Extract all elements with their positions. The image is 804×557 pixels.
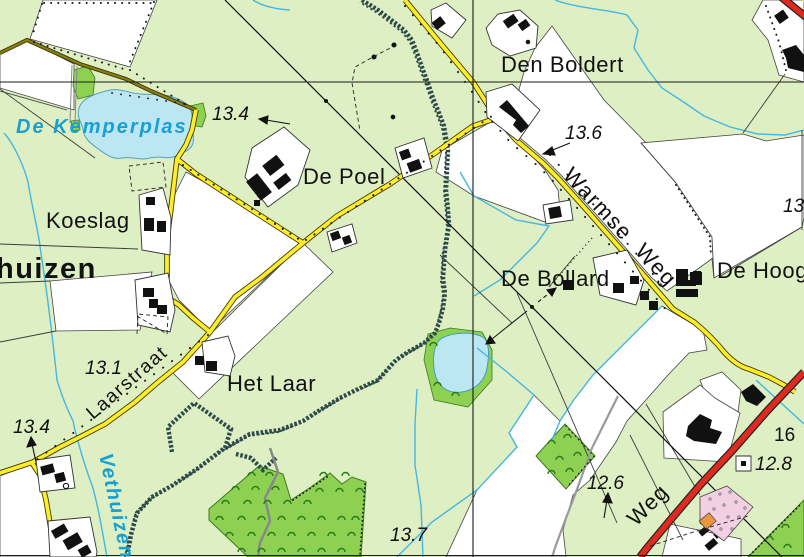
- svg-text:De Bollard: De Bollard: [501, 266, 610, 291]
- svg-text:Koeslag: Koeslag: [46, 208, 130, 233]
- svg-text:Den Boldert: Den Boldert: [501, 52, 624, 77]
- svg-text:13.4: 13.4: [212, 104, 249, 125]
- svg-text:12.8: 12.8: [755, 454, 792, 475]
- svg-text:13.4: 13.4: [13, 417, 50, 438]
- svg-text:De Hooge: De Hooge: [717, 258, 804, 283]
- svg-text:13.7: 13.7: [390, 525, 428, 546]
- svg-text:13.1: 13.1: [85, 358, 122, 379]
- svg-text:De Kemperplas: De Kemperplas: [16, 116, 188, 138]
- svg-text:huizen: huizen: [0, 253, 97, 285]
- svg-text:12.6: 12.6: [587, 473, 624, 494]
- svg-text:13.6: 13.6: [565, 123, 602, 144]
- svg-text:13.: 13.: [783, 196, 804, 217]
- svg-text:16: 16: [774, 425, 795, 446]
- svg-text:De Poel: De Poel: [303, 164, 385, 189]
- svg-text:Het Laar: Het Laar: [227, 371, 316, 396]
